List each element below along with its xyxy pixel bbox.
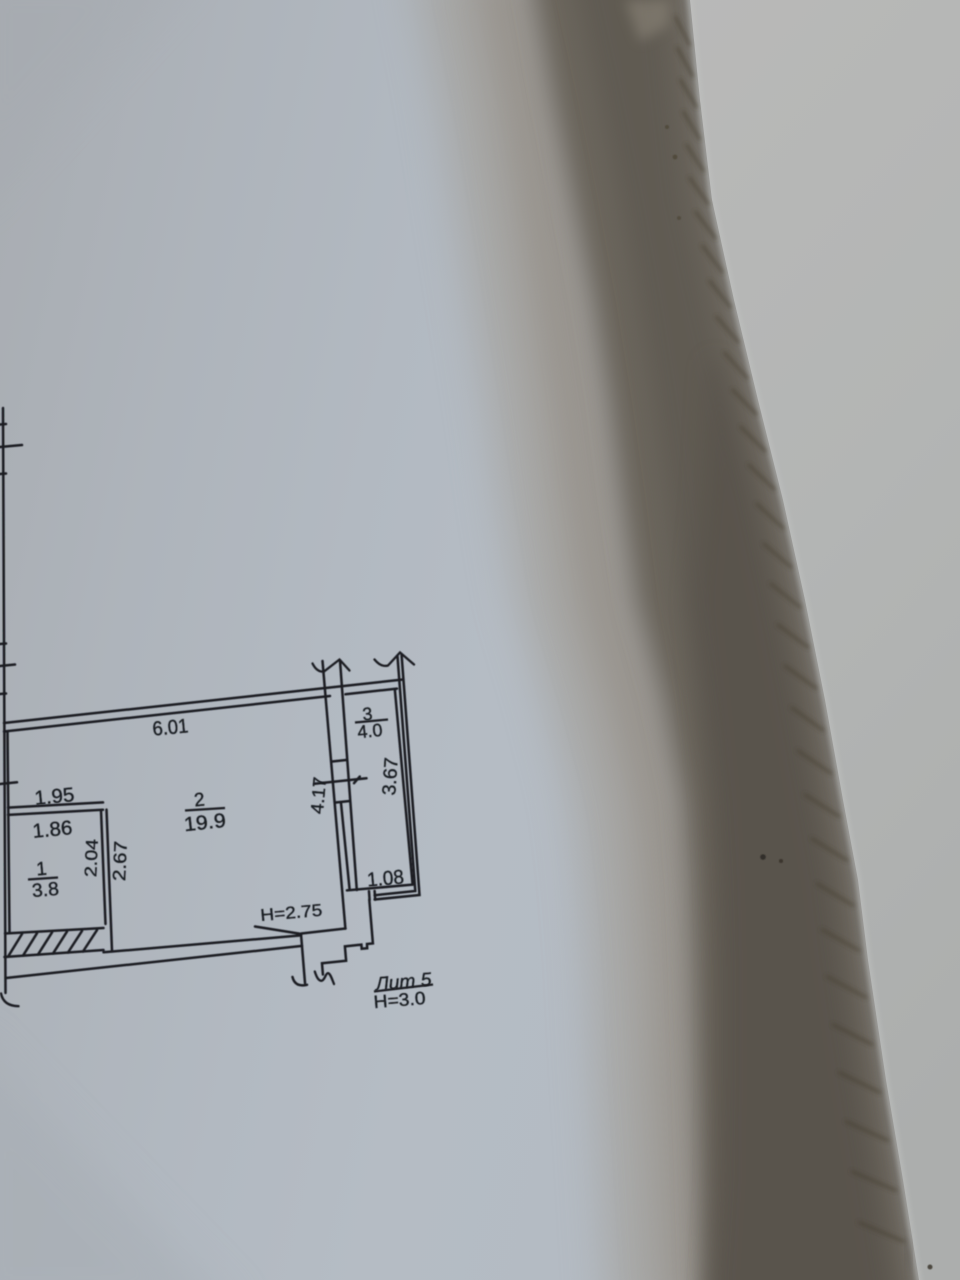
svg-text:1.08: 1.08 [366, 866, 405, 891]
svg-text:1: 1 [35, 859, 47, 881]
svg-text:4.17: 4.17 [307, 776, 330, 815]
svg-text:2.04: 2.04 [81, 839, 102, 878]
svg-text:1.95: 1.95 [33, 784, 75, 810]
svg-text:19.9: 19.9 [183, 810, 227, 836]
svg-text:4.0: 4.0 [357, 720, 384, 742]
svg-text:3.8: 3.8 [31, 879, 60, 902]
svg-text:1.86: 1.86 [31, 817, 73, 843]
svg-text:2.67: 2.67 [109, 841, 131, 882]
svg-text:3.67: 3.67 [379, 757, 403, 796]
svg-text:6.01: 6.01 [152, 715, 190, 740]
